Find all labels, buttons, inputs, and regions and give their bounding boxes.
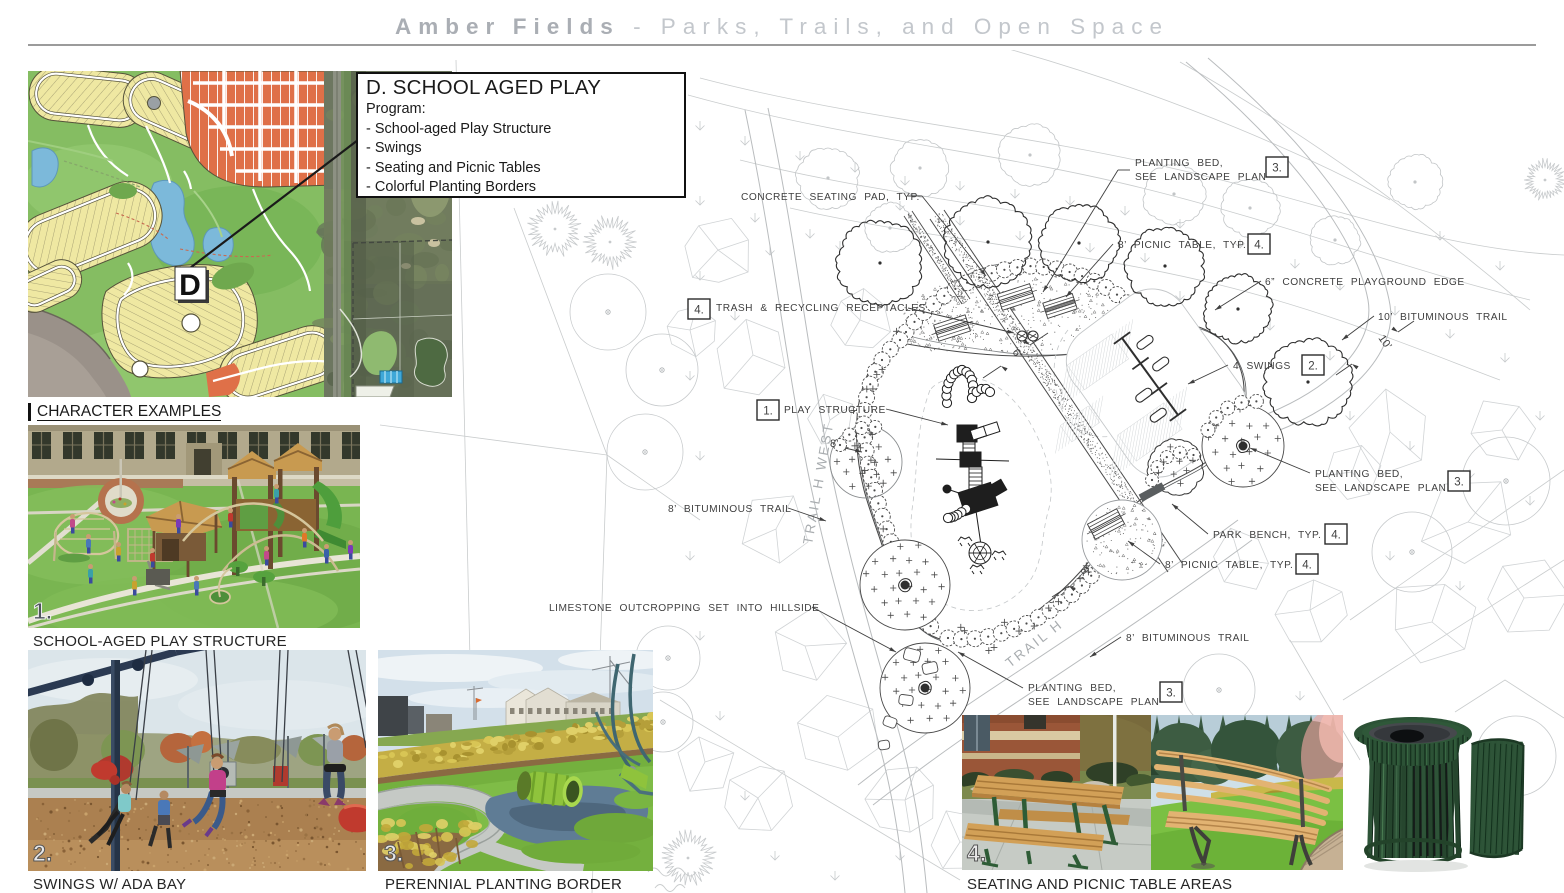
svg-text:10’ BITUMINOUS TRAIL: 10’ BITUMINOUS TRAIL: [1378, 312, 1508, 323]
svg-text:4.: 4.: [1331, 530, 1341, 542]
svg-text:3.: 3.: [1454, 477, 1464, 489]
svg-text:8’ PICNIC TABLE, TYP.: 8’ PICNIC TABLE, TYP.: [1118, 240, 1246, 251]
svg-text:2.: 2.: [1308, 361, 1318, 373]
svg-text:1.: 1.: [763, 406, 773, 418]
svg-text:SEE LANDSCAPE PLAN: SEE LANDSCAPE PLAN: [1135, 172, 1266, 183]
svg-text:D: D: [179, 269, 201, 302]
svg-text:8’: 8’: [830, 438, 839, 450]
svg-text:4 SWINGS: 4 SWINGS: [1233, 361, 1291, 372]
svg-text:3.: 3.: [1166, 688, 1176, 700]
svg-text:PARK BENCH, TYP.: PARK BENCH, TYP.: [1213, 530, 1321, 541]
svg-text:10’: 10’: [1376, 333, 1394, 352]
svg-text:PLANTING BED,: PLANTING BED,: [1028, 683, 1116, 694]
svg-text:TRASH & RECYCLING RECEPTACLES: TRASH & RECYCLING RECEPTACLES: [716, 303, 926, 314]
svg-text:PLANTING BED,: PLANTING BED,: [1135, 158, 1223, 169]
svg-text:SEE LANDSCAPE PLAN: SEE LANDSCAPE PLAN: [1315, 483, 1446, 494]
svg-text:PLAY STRUCTURE: PLAY STRUCTURE: [784, 405, 886, 416]
svg-text:8’ PICNIC TABLE, TYP.: 8’ PICNIC TABLE, TYP.: [1165, 560, 1293, 571]
svg-text:8’ BITUMINOUS TRAIL: 8’ BITUMINOUS TRAIL: [1126, 633, 1249, 644]
svg-text:SEE LANDSCAPE PLAN: SEE LANDSCAPE PLAN: [1028, 697, 1159, 708]
svg-text:4.: 4.: [694, 305, 704, 317]
svg-text:PLANTING BED,: PLANTING BED,: [1315, 469, 1403, 480]
svg-text:8’ BITUMINOUS TRAIL: 8’ BITUMINOUS TRAIL: [668, 504, 791, 515]
svg-text:4.: 4.: [1302, 560, 1312, 572]
svg-text:LIMESTONE OUTCROPPING SET INTO: LIMESTONE OUTCROPPING SET INTO HILLSIDE: [549, 603, 819, 614]
svg-text:6” CONCRETE PLAYGROUND EDGE: 6” CONCRETE PLAYGROUND EDGE: [1265, 277, 1465, 288]
svg-text:CONCRETE SEATING PAD, TYP.: CONCRETE SEATING PAD, TYP.: [741, 192, 920, 203]
svg-text:3.: 3.: [1272, 163, 1282, 175]
svg-text:4.: 4.: [1254, 240, 1264, 252]
